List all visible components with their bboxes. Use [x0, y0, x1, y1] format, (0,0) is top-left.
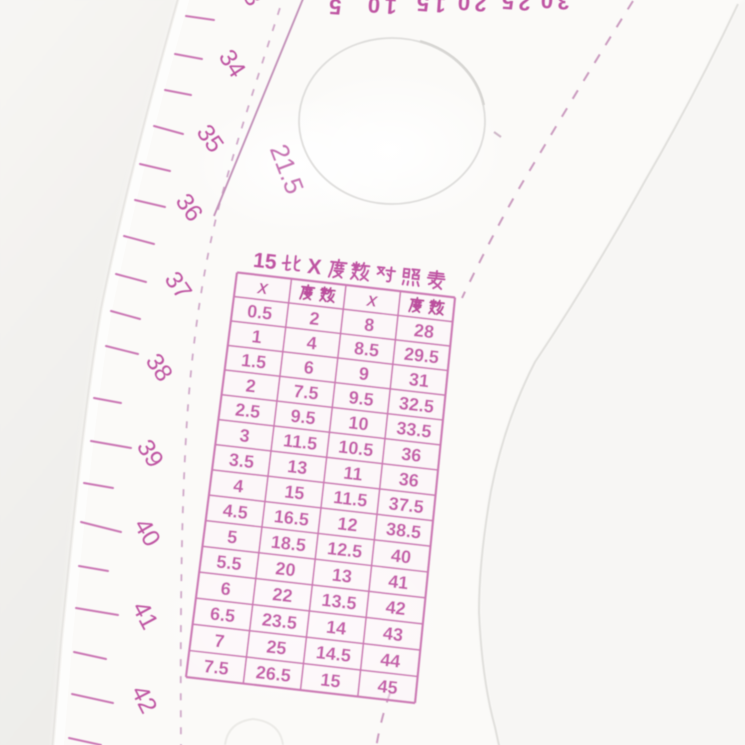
svg-text:45: 45	[377, 676, 399, 698]
svg-text:0.5: 0.5	[246, 301, 273, 324]
svg-text:13: 13	[286, 456, 308, 478]
svg-text:31: 31	[408, 369, 430, 391]
svg-text:38.5: 38.5	[385, 519, 422, 543]
svg-text:11: 11	[342, 463, 363, 485]
svg-text:5: 5	[324, 0, 342, 20]
svg-text:11.5: 11.5	[332, 487, 368, 511]
svg-text:14: 14	[325, 617, 347, 639]
svg-text:32.5: 32.5	[398, 393, 435, 417]
svg-text:7.5: 7.5	[292, 381, 319, 404]
svg-text:11.5: 11.5	[282, 430, 318, 454]
svg-text:10.5: 10.5	[337, 436, 374, 460]
svg-text:14.5: 14.5	[315, 642, 352, 666]
svg-text:20: 20	[452, 0, 487, 17]
svg-text:15: 15	[411, 0, 446, 18]
svg-text:42: 42	[385, 597, 407, 619]
svg-text:12.5: 12.5	[326, 538, 363, 562]
svg-text:25: 25	[496, 0, 531, 16]
svg-text:1.5: 1.5	[240, 350, 267, 373]
svg-text:15: 15	[252, 249, 278, 274]
svg-text:36: 36	[398, 469, 420, 491]
svg-text:4.5: 4.5	[222, 500, 249, 523]
svg-text:43: 43	[382, 623, 404, 645]
svg-text:12: 12	[336, 513, 358, 535]
svg-text:29.5: 29.5	[403, 344, 440, 368]
svg-text:6.5: 6.5	[209, 604, 236, 627]
svg-text:25: 25	[265, 637, 287, 659]
svg-text:13: 13	[331, 565, 353, 587]
svg-text:5.5: 5.5	[215, 552, 242, 575]
svg-text:41: 41	[387, 571, 409, 593]
svg-text:13.5: 13.5	[321, 590, 358, 614]
svg-text:30: 30	[535, 0, 570, 15]
svg-text:X: X	[306, 255, 322, 279]
svg-text:16.5: 16.5	[273, 506, 310, 530]
svg-text:37.5: 37.5	[388, 493, 425, 517]
svg-text:2.5: 2.5	[234, 399, 261, 422]
svg-text:9.5: 9.5	[348, 387, 375, 410]
svg-text:26.5: 26.5	[255, 662, 292, 686]
svg-text:44: 44	[379, 649, 401, 671]
svg-text:15: 15	[319, 669, 341, 691]
svg-text:36: 36	[400, 444, 422, 466]
svg-text:28: 28	[413, 320, 435, 342]
svg-text:10: 10	[347, 412, 369, 434]
svg-text:9.5: 9.5	[290, 406, 317, 429]
svg-text:15: 15	[283, 481, 305, 503]
svg-text:40: 40	[390, 545, 412, 567]
svg-text:20: 20	[274, 558, 296, 580]
svg-text:7.5: 7.5	[203, 656, 230, 679]
svg-text:33.5: 33.5	[395, 418, 432, 442]
svg-text:18.5: 18.5	[270, 532, 307, 556]
svg-text:10: 10	[362, 0, 397, 19]
svg-text:22: 22	[271, 584, 293, 606]
svg-text:23.5: 23.5	[261, 609, 298, 633]
svg-text:8.5: 8.5	[353, 338, 380, 361]
svg-text:3.5: 3.5	[228, 450, 255, 473]
